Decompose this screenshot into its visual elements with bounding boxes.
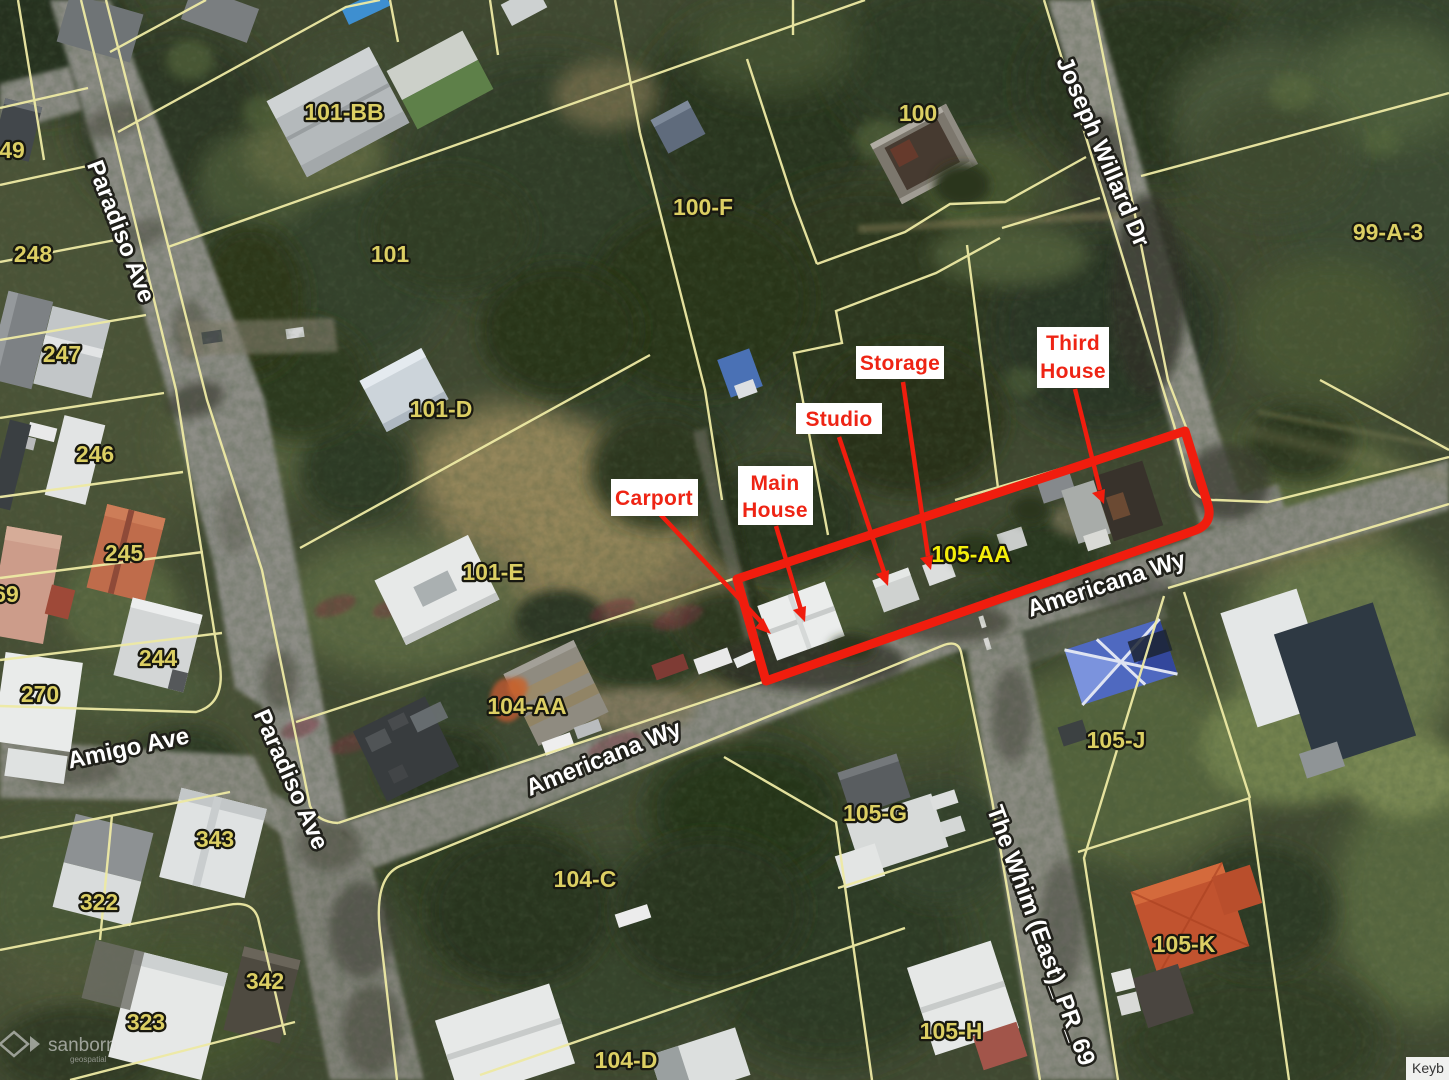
- svg-text:House: House: [1040, 360, 1106, 383]
- svg-text:geospatial: geospatial: [70, 1055, 107, 1064]
- svg-text:270: 270: [21, 681, 59, 707]
- svg-text:323: 323: [127, 1009, 165, 1035]
- svg-text:244: 244: [139, 645, 178, 671]
- svg-text:342: 342: [246, 968, 284, 994]
- svg-text:105-G: 105-G: [843, 800, 907, 826]
- svg-text:104-C: 104-C: [554, 866, 617, 892]
- svg-text:69: 69: [0, 581, 19, 607]
- svg-text:105-H: 105-H: [920, 1018, 983, 1044]
- svg-text:104-AA: 104-AA: [487, 693, 566, 719]
- svg-text:105-AA: 105-AA: [931, 541, 1010, 567]
- svg-text:101: 101: [371, 241, 410, 267]
- svg-text:Storage: Storage: [860, 352, 940, 375]
- svg-text:Main: Main: [750, 472, 799, 495]
- svg-text:Studio: Studio: [805, 408, 872, 431]
- svg-text:104-D: 104-D: [595, 1047, 658, 1073]
- svg-text:245: 245: [105, 540, 144, 566]
- svg-text:100-F: 100-F: [673, 194, 733, 220]
- svg-text:Third: Third: [1046, 332, 1100, 355]
- svg-text:105-K: 105-K: [1153, 931, 1216, 957]
- svg-text:100: 100: [899, 100, 937, 126]
- svg-text:322: 322: [80, 889, 118, 915]
- svg-text:Carport: Carport: [615, 487, 693, 510]
- svg-text:sanborn: sanborn: [48, 1035, 117, 1056]
- svg-text:101-BB: 101-BB: [304, 99, 383, 125]
- svg-text:248: 248: [14, 241, 53, 267]
- svg-text:105-J: 105-J: [1087, 727, 1146, 753]
- svg-text:House: House: [742, 499, 808, 522]
- svg-text:343: 343: [196, 826, 234, 852]
- svg-text:101-D: 101-D: [410, 396, 473, 422]
- svg-text:101-E: 101-E: [462, 559, 523, 585]
- svg-text:49: 49: [0, 137, 25, 163]
- svg-text:247: 247: [43, 341, 81, 367]
- svg-text:Keyb: Keyb: [1412, 1060, 1444, 1076]
- svg-text:246: 246: [76, 441, 114, 467]
- svg-text:99-A-3: 99-A-3: [1353, 219, 1423, 245]
